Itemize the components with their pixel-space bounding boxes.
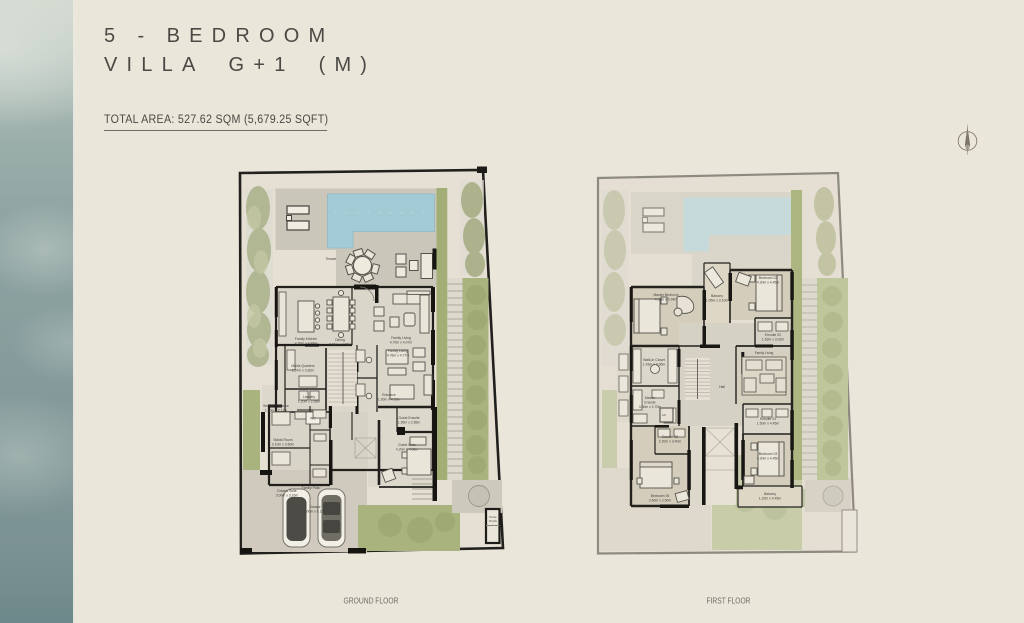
svg-text:1.20m x 4.45m: 1.20m x 4.45m [759,497,782,501]
svg-text:1.50m x 4.45m: 1.50m x 4.45m [757,422,780,426]
svg-text:Maids Room: Maids Room [273,438,292,442]
svg-text:Porch: Porch [489,519,497,523]
svg-text:Dining: Dining [335,338,345,342]
svg-text:Bedroom 05: Bedroom 05 [651,494,670,498]
svg-text:Guest Suite: Guest Suite [398,443,416,447]
svg-text:Ensuite 05: Ensuite 05 [662,435,678,439]
svg-text:Lift: Lift [662,413,666,417]
svg-text:2.20m x 3.40m: 2.20m x 3.40m [659,440,682,444]
svg-text:4.00m x 5.94m: 4.00m x 5.94m [655,298,678,302]
svg-text:Garage: Garage [309,505,320,509]
svg-text:Entrance: Entrance [382,393,396,397]
svg-text:Walk-in Closet: Walk-in Closet [643,358,665,362]
svg-text:Maids Quarters: Maids Quarters [291,364,314,368]
svg-text:Family Patio: Family Patio [302,486,321,490]
svg-text:4.20m x 4.06m: 4.20m x 4.06m [396,448,419,452]
svg-text:Family Living: Family Living [391,336,411,340]
svg-text:3.30m x 2.70m: 3.30m x 2.70m [639,405,662,409]
svg-text:Balcony: Balcony [711,294,723,298]
svg-text:3.46m x 4.92m: 3.46m x 4.92m [329,343,352,347]
svg-text:Balcony: Balcony [764,492,776,496]
svg-text:Bedroom 03: Bedroom 03 [759,452,778,456]
svg-text:3.60m x 2.50m: 3.60m x 2.50m [649,499,672,503]
svg-text:4.20m x 4.45m: 4.20m x 4.45m [757,281,780,285]
svg-text:Guest Ensuite: Guest Ensuite [398,416,419,420]
svg-text:1.05m x 3.10m: 1.05m x 3.10m [706,299,729,303]
svg-text:Master Bedroom: Master Bedroom [653,293,678,297]
svg-text:4.70m x 4.07m: 4.70m x 4.07m [390,341,413,345]
svg-text:4.30m x 4.97m: 4.30m x 4.97m [295,342,318,346]
svg-text:Master: Master [645,396,656,400]
svg-text:Bedroom 02: Bedroom 02 [759,276,778,280]
svg-text:6.00m x 6.15m: 6.00m x 6.15m [304,510,327,514]
svg-text:Ensuite 02: Ensuite 02 [765,333,781,337]
svg-text:GROUND FLOOR: GROUND FLOOR [344,597,399,606]
svg-text:Family Kitchen: Family Kitchen [295,337,317,341]
svg-text:1.63m x 3.02m: 1.63m x 3.02m [762,338,785,342]
svg-text:3.10m x 3.60m: 3.10m x 3.60m [272,443,295,447]
svg-text:4.20m x 4.45m: 4.20m x 4.45m [757,457,780,461]
svg-text:1.43m x 3.65m: 1.43m x 3.65m [643,363,666,367]
svg-text:Ensuite: Ensuite [644,401,655,405]
svg-text:3.00m x 3.16m: 3.00m x 3.16m [276,494,299,498]
svg-text:Drivers Suite: Drivers Suite [277,489,297,493]
svg-text:Terrace: Terrace [326,257,337,261]
svg-text:1.20m x 2.85m: 1.20m x 2.85m [298,400,321,404]
svg-text:Laundry: Laundry [303,395,316,399]
svg-text:1.95m x 2.85m: 1.95m x 2.85m [398,421,421,425]
svg-text:Ensuite 03: Ensuite 03 [760,417,776,421]
svg-text:FIRST FLOOR: FIRST FLOOR [707,597,751,606]
svg-text:1.30m x 2.11m: 1.30m x 2.11m [265,409,287,413]
svg-text:1.30m x 4.10m: 1.30m x 4.10m [378,398,401,402]
svg-text:4.76m x 4.77m: 4.76m x 4.77m [387,354,410,358]
svg-text:Service Entrance: Service Entrance [263,404,289,408]
svg-text:Family Living: Family Living [388,349,408,353]
svg-text:2.67m x 3.82m: 2.67m x 3.82m [292,369,315,373]
svg-text:WC: WC [310,417,316,421]
svg-text:Family Living: Family Living [755,351,774,355]
svg-text:Hall: Hall [719,385,725,389]
